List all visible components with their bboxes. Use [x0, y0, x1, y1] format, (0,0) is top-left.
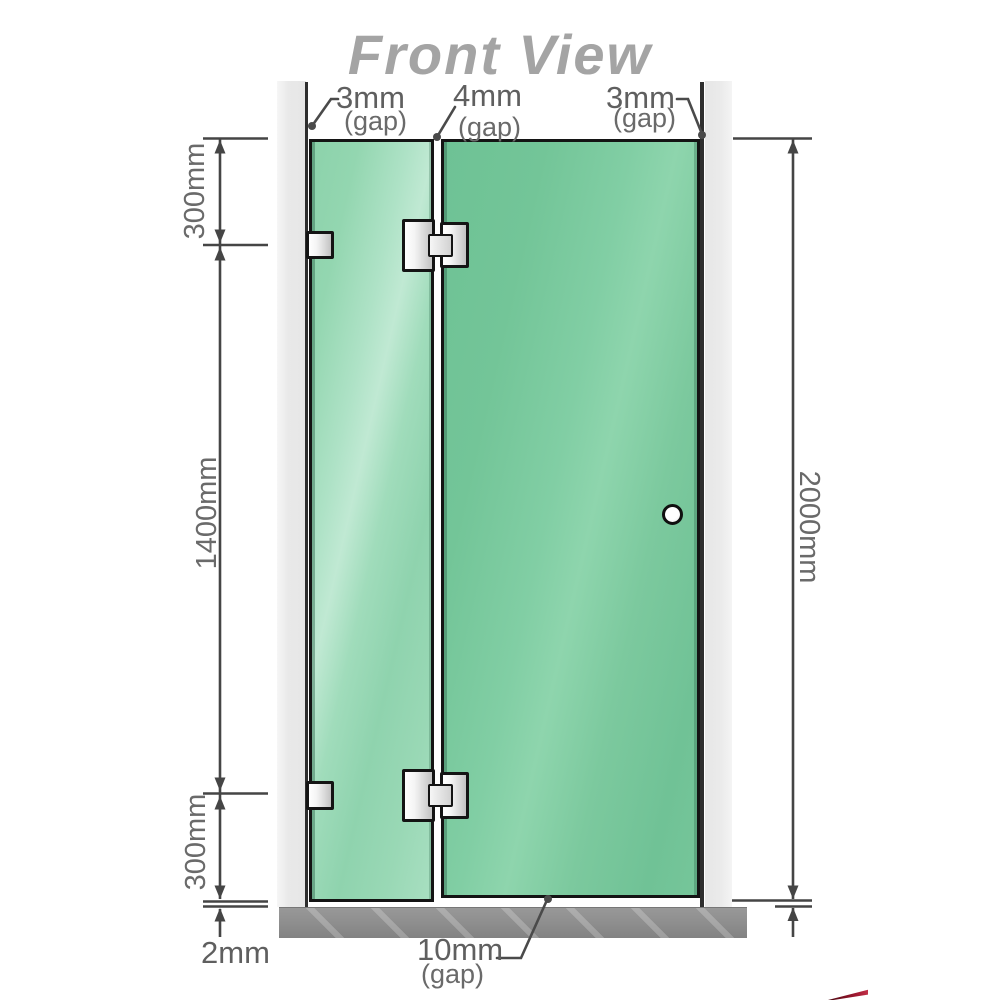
- front-view-diagram: Front View: [0, 0, 1000, 1000]
- dim-label-2mm: 2mm: [201, 937, 270, 968]
- dim-label-2000: 2000mm: [793, 442, 825, 612]
- dim-label-300-bottom: 300mm: [180, 757, 212, 927]
- gap-label-middle-suffix: (gap): [458, 114, 521, 141]
- dim-label-1400: 1400mm: [191, 428, 223, 598]
- leader-lines: [312, 99, 702, 958]
- dim-label-300-top: 300mm: [179, 106, 211, 276]
- leader-dots: [308, 122, 706, 903]
- gap-label-middle: 4mm: [453, 80, 522, 111]
- gap-label-right-suffix: (gap): [613, 105, 676, 132]
- dimension-annotations: [0, 0, 1000, 1000]
- gap-label-left-suffix: (gap): [344, 108, 407, 135]
- gap-label-bottom-suffix: (gap): [421, 961, 484, 988]
